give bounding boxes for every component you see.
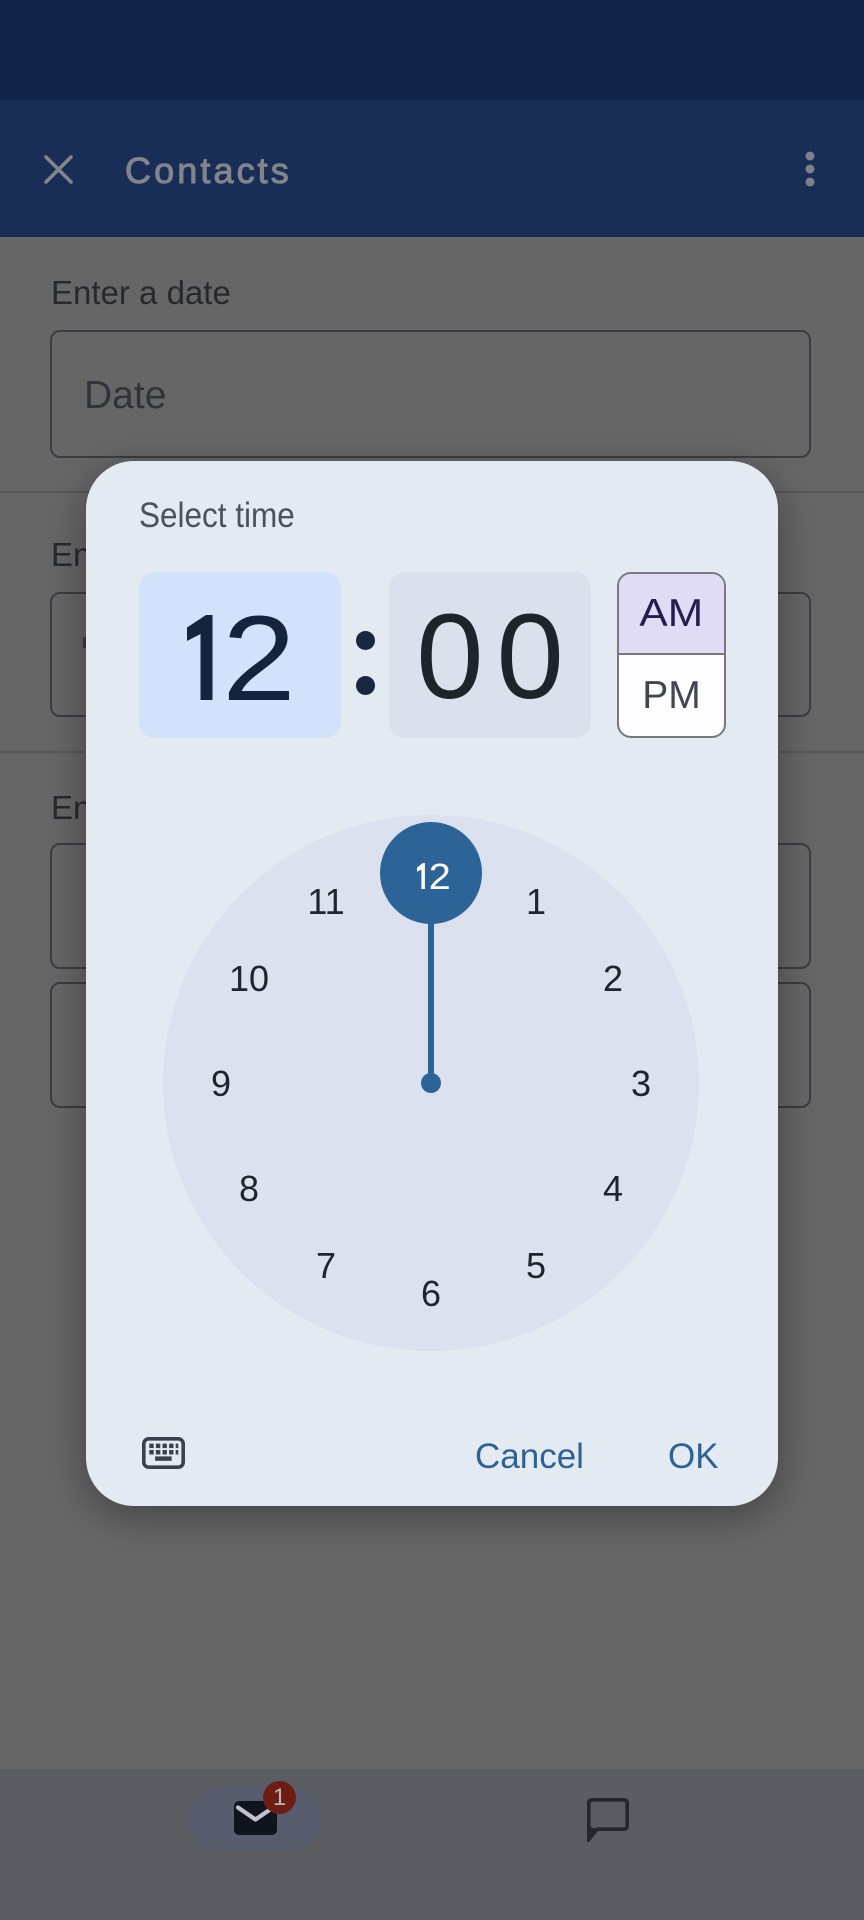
svg-text:2: 2 [222,590,295,726]
svg-text:2: 2 [429,858,451,898]
